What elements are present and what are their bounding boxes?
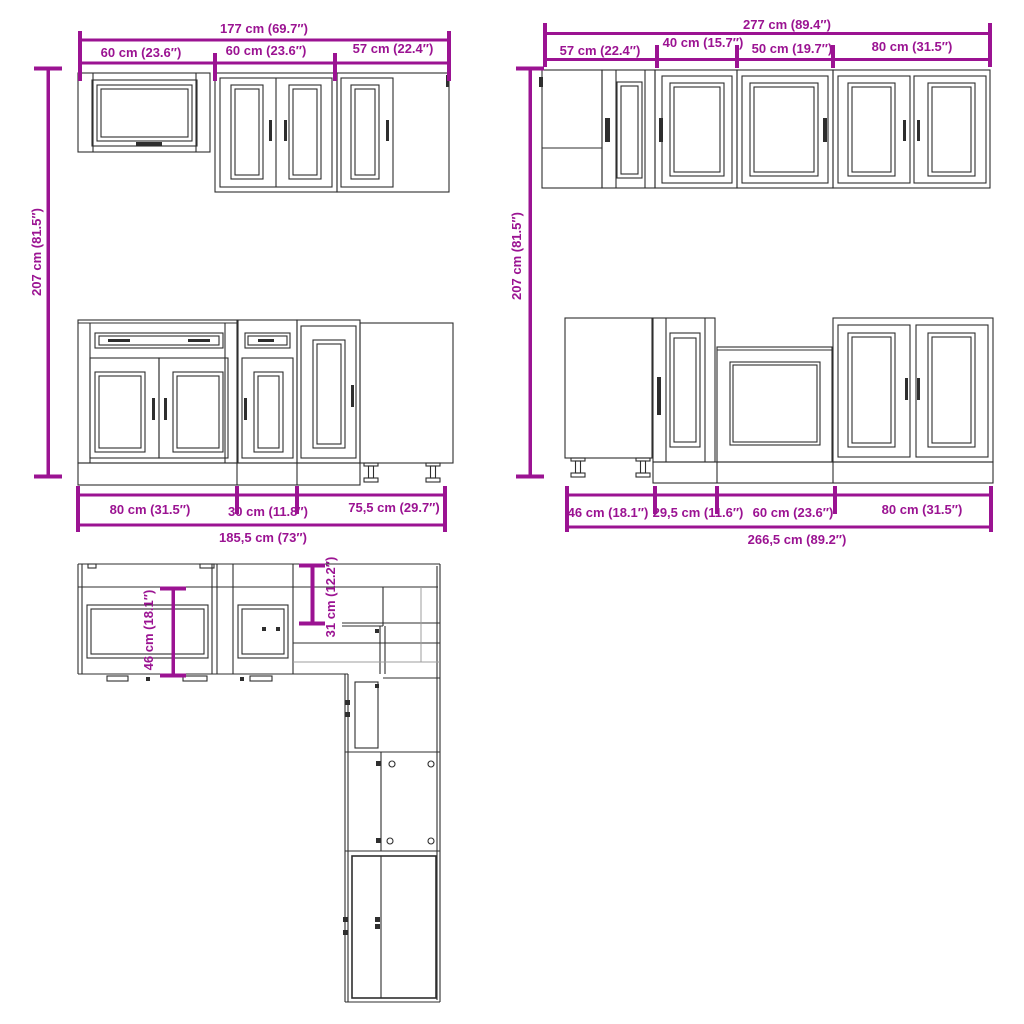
dim-label-wall-right-seg-2: 50 cm (19.7″) <box>752 41 833 56</box>
dim-label-wall-left-total: 177 cm (69.7″) <box>220 21 308 36</box>
dim-label-base-left-seg-0: 80 cm (31.5″) <box>110 502 191 517</box>
dim-label-base-right-seg-2: 60 cm (23.6″) <box>753 505 834 520</box>
dim-label-base-left-seg-2: 75,5 cm (29.7″) <box>348 500 440 515</box>
dim-label-wall-left-seg-1: 60 cm (23.6″) <box>226 43 307 58</box>
dim-label-wall-right-total: 277 cm (89.4″) <box>743 17 831 32</box>
dim-label-wall-left-seg-0: 60 cm (23.6″) <box>101 45 182 60</box>
dim-label-wall-right-seg-1: 40 cm (15.7″) <box>663 35 744 50</box>
dim-label-base-left-seg-1: 30 cm (11.8″) <box>228 504 308 519</box>
dim-label-plan-wall-depth: 31 cm (12.2″) <box>323 557 338 638</box>
diagram-canvas: 177 cm (69.7″) 60 cm (23.6″) 60 cm (23.6… <box>0 0 1024 1024</box>
dim-label-base-right-seg-0: 46 cm (18.1″) <box>568 505 649 520</box>
dim-label-base-right-total: 266,5 cm (89.2″) <box>748 532 847 547</box>
dim-label-wall-left-seg-2: 57 cm (22.4″) <box>353 41 434 56</box>
dim-label-base-right-seg-3: 80 cm (31.5″) <box>882 502 963 517</box>
dim-label-height-left: 207 cm (81.5″) <box>29 208 44 296</box>
dim-label-wall-right-seg-0: 57 cm (22.4″) <box>560 43 641 58</box>
dim-label-base-right-seg-1: 29,5 cm (11.6″) <box>653 505 744 520</box>
dim-label-plan-base-depth: 46 cm (18.1″) <box>141 590 156 671</box>
dim-label-wall-right-seg-3: 80 cm (31.5″) <box>872 39 953 54</box>
dim-label-height-right: 207 cm (81.5″) <box>509 212 524 300</box>
kitchen-dimensions-diagram: 177 cm (69.7″) 60 cm (23.6″) 60 cm (23.6… <box>0 0 1024 1024</box>
dim-label-base-left-total: 185,5 cm (73″) <box>219 530 307 545</box>
